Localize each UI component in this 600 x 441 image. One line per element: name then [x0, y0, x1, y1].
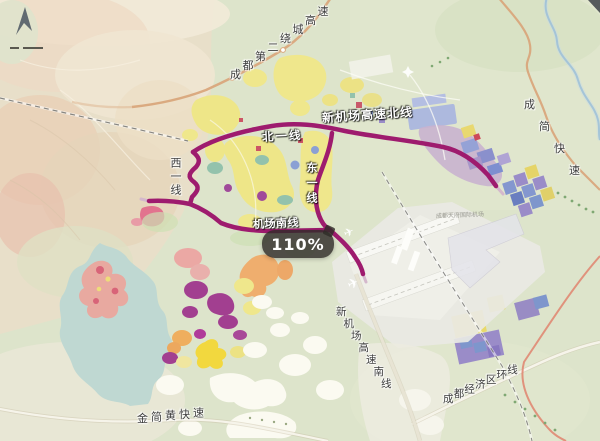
map-canvas[interactable]: ✈ ✈ — [0, 0, 600, 441]
zoom-level-tooltip: 110% — [262, 230, 334, 258]
svg-text:✈: ✈ — [341, 224, 356, 241]
scale-bar — [10, 47, 43, 49]
planning-map-viewport[interactable]: ✈ ✈ — [0, 0, 600, 441]
north-compass-icon — [13, 5, 39, 39]
zoom-level-value: 110% — [271, 235, 324, 254]
